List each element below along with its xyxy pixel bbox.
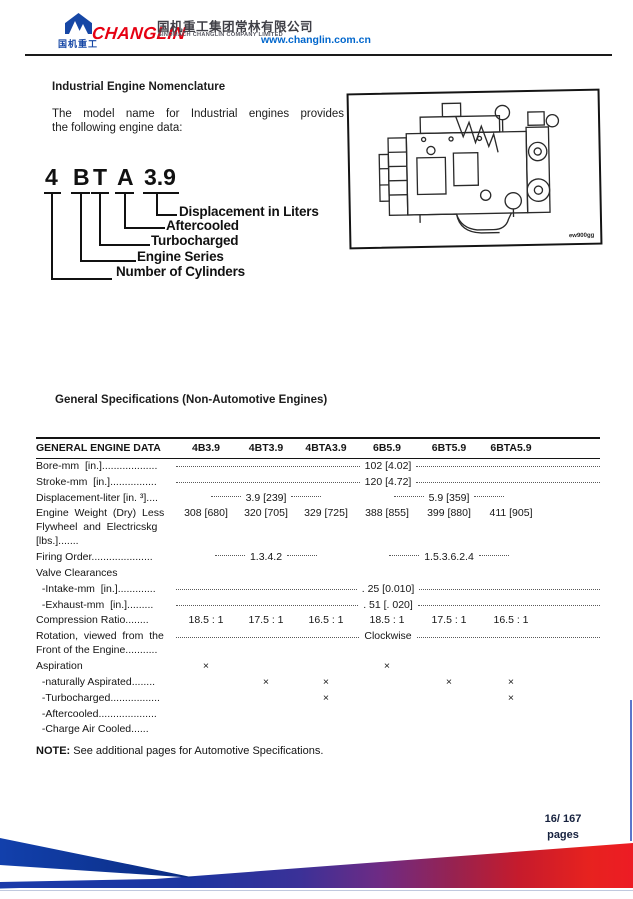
model-part-aftercooled: A (117, 166, 134, 189)
column-header: 4B3.9 (176, 438, 236, 458)
note-label: NOTE: (36, 745, 70, 757)
column-header: 6BTA5.9 (480, 438, 542, 458)
connector-line (99, 194, 101, 246)
cell-value: 411 [905] (480, 506, 542, 550)
intro-line-2: the following engine data: (52, 122, 182, 134)
cell-value (236, 722, 296, 738)
row-label: Valve Clearances (36, 566, 176, 582)
filler-cell (542, 613, 600, 629)
cell-value: 18.5 : 1 (176, 613, 236, 629)
cell-value (236, 691, 296, 707)
row-label: -Aftercooled.................... (36, 707, 176, 723)
connector-line (80, 260, 136, 262)
website-link[interactable]: www.changlin.com.cn (261, 34, 371, 46)
cell-value: 329 [725] (296, 506, 356, 550)
table-row: Compression Ratio........18.5 : 117.5 : … (36, 613, 600, 629)
connector-line (124, 194, 126, 229)
footer-bottom-line (0, 890, 633, 891)
footer-wedge-shape (0, 838, 196, 878)
header-divider (25, 54, 612, 56)
document-page: 国机重工 CHANGLIN 国机重工集团常林有限公司 SINOMACH CHAN… (0, 0, 633, 899)
table-row: Valve Clearances (36, 566, 600, 582)
cell-value (356, 722, 418, 738)
cell-value: 17.5 : 1 (236, 613, 296, 629)
row-label: -Intake-mm [in.]............. (36, 582, 176, 598)
connector-line (80, 194, 82, 262)
table-row: Rotation, viewed from the Front of the E… (36, 629, 600, 659)
filler-cell (542, 491, 600, 507)
cell-value: × (418, 675, 480, 691)
column-header: 4BTA3.9 (296, 438, 356, 458)
connector-line (156, 194, 158, 216)
cell-value: 399 [880] (418, 506, 480, 550)
row-label: Aspiration (36, 659, 176, 675)
cell-value: × (480, 675, 542, 691)
engine-illustration: ew900gg (347, 89, 603, 250)
cell-value: 18.5 : 1 (356, 613, 418, 629)
label-number-of-cylinders: Number of Cylinders (116, 264, 245, 279)
table-row: -Turbocharged.................×× (36, 691, 600, 707)
row-label: Bore-mm [in.]................... (36, 458, 176, 474)
table-row: Engine Weight (Dry) Less Flywheel and El… (36, 506, 600, 550)
row-label: -Turbocharged................. (36, 691, 176, 707)
filler-cell (542, 691, 600, 707)
column-header: GENERAL ENGINE DATA (36, 438, 176, 458)
table-row: Aspiration×× (36, 659, 600, 675)
table-row: Stroke-mm [in.]................120 [4.72… (36, 475, 600, 491)
cell-value: × (236, 675, 296, 691)
cell-value (418, 722, 480, 738)
table-row: Bore-mm [in.]...................102 [4.0… (36, 458, 600, 474)
cell-value: × (480, 691, 542, 707)
cell-value (296, 722, 356, 738)
connector-line (51, 278, 112, 280)
cell-value (480, 707, 542, 723)
cell-value (356, 707, 418, 723)
cell-value: 388 [855] (356, 506, 418, 550)
cell-value: 308 [680] (176, 506, 236, 550)
model-part-displacement: 3.9 (144, 166, 176, 189)
intro-line-1: The model name for Industrial engines pr… (52, 107, 344, 121)
row-span-value: . 25 [0.010] (176, 582, 600, 598)
row-span-value: . 51 [. 020] (176, 598, 600, 614)
cell-value: × (296, 675, 356, 691)
section-title-nomenclature: Industrial Engine Nomenclature (52, 81, 225, 93)
cell-value: × (296, 691, 356, 707)
cell-value (356, 691, 418, 707)
cell-value: 320 [705] (236, 506, 296, 550)
cell-value (296, 659, 356, 675)
table-row: -Exhaust-mm [in.].......... 51 [. 020] (36, 598, 600, 614)
note-text: See additional pages for Automotive Spec… (70, 745, 323, 757)
column-header-filler (542, 438, 600, 458)
row-label: Engine Weight (Dry) Less Flywheel and El… (36, 506, 176, 550)
cell-value (418, 707, 480, 723)
connector-line (156, 214, 177, 216)
page-edge-line (630, 700, 632, 841)
filler-cell (542, 550, 600, 566)
cell-value (236, 659, 296, 675)
label-aftercooled: Aftercooled (166, 218, 239, 233)
cell-value: 16.5 : 1 (480, 613, 542, 629)
cell-value (480, 659, 542, 675)
row-span-value: 120 [4.72] (176, 475, 600, 491)
filler-cell (542, 659, 600, 675)
row-label: Compression Ratio........ (36, 613, 176, 629)
row-label: -naturally Aspirated........ (36, 675, 176, 691)
underline (143, 192, 179, 194)
engine-drawing (349, 91, 601, 248)
filler-cell (542, 722, 600, 738)
cell-value (480, 722, 542, 738)
note-line: NOTE: See additional pages for Automotiv… (36, 745, 600, 757)
page-header: 国机重工 CHANGLIN 国机重工集团常林有限公司 SINOMACH CHAN… (0, 0, 633, 58)
cell-value (236, 707, 296, 723)
changlin-logo-icon: 国机重工 (62, 13, 94, 49)
table-header-row: GENERAL ENGINE DATA 4B3.9 4BT3.9 4BTA3.9… (36, 438, 600, 458)
cell-value (176, 691, 236, 707)
page-number-value: 16/ 167 (541, 812, 585, 828)
label-displacement: Displacement in Liters (179, 204, 319, 219)
connector-line (51, 194, 53, 280)
half-span-value: 5.9 [359] (356, 491, 542, 507)
intro-paragraph: The model name for Industrial engines pr… (52, 107, 344, 136)
model-part-series: B (73, 166, 90, 189)
filler-cell (542, 506, 600, 550)
table-row: Firing Order.....................1.3.4.2… (36, 550, 600, 566)
half-span-value: 1.5.3.6.2.4 (356, 550, 542, 566)
cell-value (356, 675, 418, 691)
row-label: Displacement-liter [in. ³].... (36, 491, 176, 507)
cell-value: 17.5 : 1 (418, 613, 480, 629)
connector-line (99, 244, 150, 246)
spec-table-body: Bore-mm [in.]...................102 [4.0… (36, 458, 600, 738)
model-part-cylinders: 4 (45, 166, 58, 189)
table-row: -Aftercooled.................... (36, 707, 600, 723)
label-engine-series: Engine Series (137, 249, 224, 264)
cell-value (296, 707, 356, 723)
cell-value: × (176, 659, 236, 675)
row-label: -Exhaust-mm [in.]......... (36, 598, 176, 614)
half-span-value: 1.3.4.2 (176, 550, 356, 566)
cell-value (418, 659, 480, 675)
table-row: -naturally Aspirated........×××× (36, 675, 600, 691)
filler-cell (542, 707, 600, 723)
cell-value: × (356, 659, 418, 675)
column-header: 4BT3.9 (236, 438, 296, 458)
half-span-value: 3.9 [239] (176, 491, 356, 507)
row-label: Firing Order..................... (36, 550, 176, 566)
empty-span (176, 566, 600, 582)
section-title-specs: General Specifications (Non-Automotive E… (55, 394, 327, 406)
cell-value: 16.5 : 1 (296, 613, 356, 629)
filler-cell (542, 675, 600, 691)
model-part-turbo: T (93, 166, 107, 189)
column-header: 6B5.9 (356, 438, 418, 458)
model-nomenclature-diagram: 4 B T A 3.9 Displacement in Liters After… (40, 160, 350, 295)
row-span-value: Clockwise (176, 629, 600, 659)
row-label: Stroke-mm [in.]................ (36, 475, 176, 491)
label-turbocharged: Turbocharged (151, 233, 238, 248)
table-row: Displacement-liter [in. ³]....3.9 [239]5… (36, 491, 600, 507)
general-engine-data-table: GENERAL ENGINE DATA 4B3.9 4BT3.9 4BTA3.9… (36, 437, 600, 738)
table-row: -Intake-mm [in.].............. 25 [0.010… (36, 582, 600, 598)
footer-band-svg (0, 834, 633, 899)
cell-value (176, 722, 236, 738)
cell-value (176, 707, 236, 723)
spec-table-container: GENERAL ENGINE DATA 4B3.9 4BT3.9 4BTA3.9… (36, 437, 600, 757)
column-header: 6BT5.9 (418, 438, 480, 458)
cell-value (418, 691, 480, 707)
footer-graphic (0, 834, 633, 899)
logo-mountain-icon-2 (78, 24, 88, 34)
row-label: Rotation, viewed from the Front of the E… (36, 629, 176, 659)
cell-value (176, 675, 236, 691)
figure-code: ew900gg (569, 233, 594, 239)
connector-line (124, 227, 165, 229)
row-label: -Charge Air Cooled...... (36, 722, 176, 738)
row-span-value: 102 [4.02] (176, 458, 600, 474)
table-row: -Charge Air Cooled...... (36, 722, 600, 738)
